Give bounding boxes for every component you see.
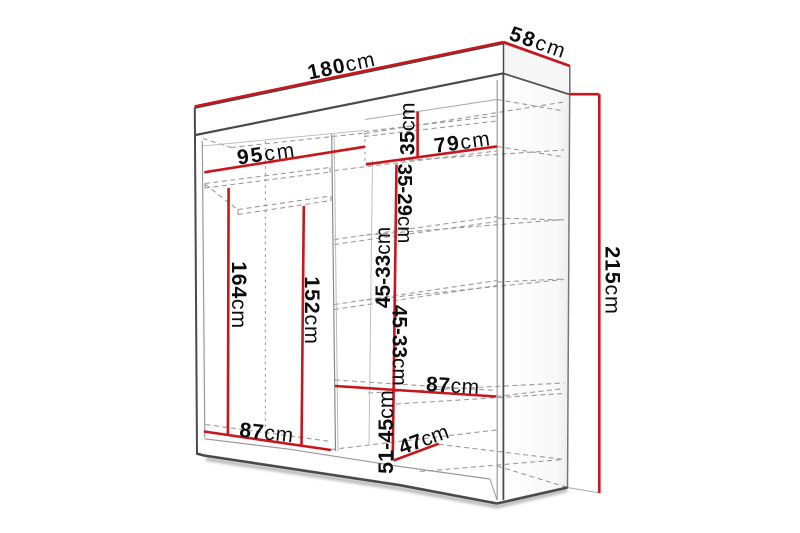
svg-text:152cm: 152cm xyxy=(300,276,324,345)
svg-text:45-33cm: 45-33cm xyxy=(372,227,395,308)
svg-text:35cm: 35cm xyxy=(395,103,419,156)
svg-text:87cm: 87cm xyxy=(425,373,480,399)
svg-text:215cm: 215cm xyxy=(601,246,625,315)
svg-text:164cm: 164cm xyxy=(227,261,251,329)
svg-text:45-33cm: 45-33cm xyxy=(387,305,410,386)
svg-text:35-29cm: 35-29cm xyxy=(393,164,416,244)
svg-text:51-45cm: 51-45cm xyxy=(374,390,398,474)
